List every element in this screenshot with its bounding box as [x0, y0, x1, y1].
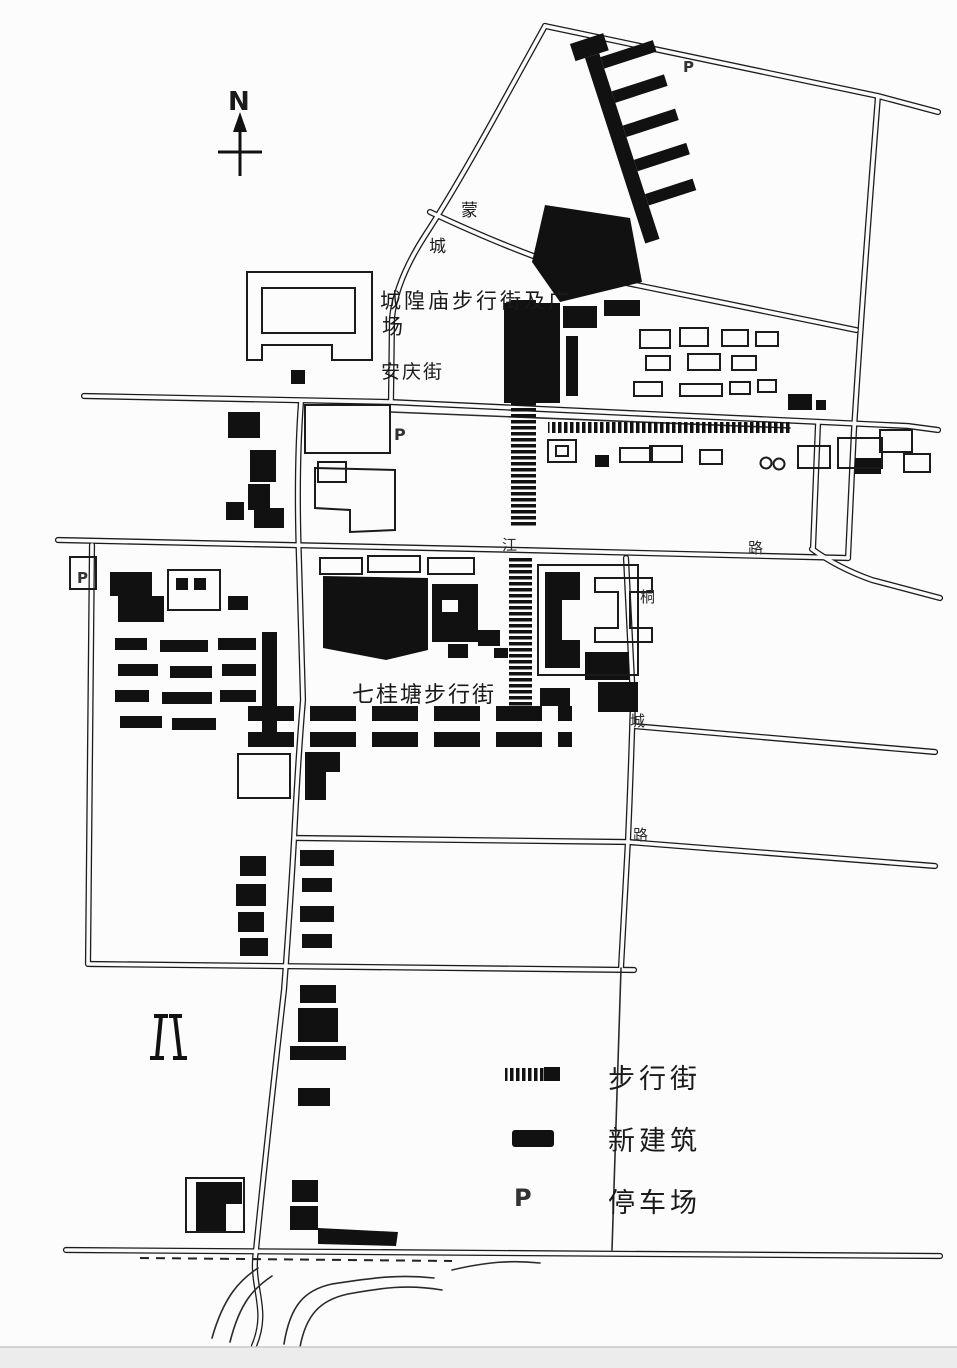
parking-marker-top: P: [683, 58, 694, 76]
north-letter: N: [228, 87, 250, 117]
anqing-street-label: 安庆街: [381, 361, 444, 383]
legend-item-new-building: 新建筑: [512, 1126, 701, 1157]
tongcheng-road-char-1: 桐: [640, 588, 655, 606]
map-canvas: N 城隍庙步行街及广 场 安庆街 蒙 城 七桂塘步行街 江 路 桐 城 路 P …: [0, 0, 957, 1368]
parking-marker-center: P: [394, 425, 406, 444]
new-buildings-layer: [110, 19, 881, 1246]
legend-label-pedestrian-street: 步行街: [608, 1064, 701, 1095]
legend-p-symbol: P: [514, 1184, 532, 1212]
parking-marker-left: P: [77, 569, 88, 587]
legend-item-pedestrian-street: 步行街: [505, 1064, 701, 1095]
north-arrow: N: [218, 87, 262, 176]
tongcheng-road-char-3: 路: [633, 826, 648, 844]
chenghuangmiao-label-line1: 城隍庙步行街及广: [380, 289, 572, 313]
legend-label-parking: 停车场: [608, 1188, 701, 1219]
legend-label-new-building: 新建筑: [608, 1126, 701, 1157]
legend-hatched-bar-end: [544, 1067, 560, 1081]
chenghuangmiao-label-line2: 场: [382, 315, 403, 339]
road-centers: [58, 26, 940, 1346]
changjiang-road-char: 江: [502, 536, 517, 554]
mengcheng-road-char-2: 城: [429, 237, 446, 257]
road-network: [58, 26, 940, 1346]
legend-item-parking: P 停车场: [514, 1184, 701, 1219]
changjiang-road-lu-char: 路: [748, 539, 763, 557]
scan-page-edge: [0, 1347, 957, 1368]
legend-black-block-symbol: [512, 1130, 554, 1147]
building-courtyard: [442, 600, 458, 612]
scanned-map-page: N 城隍庙步行街及广 场 安庆街 蒙 城 七桂塘步行街 江 路 桐 城 路 P …: [0, 0, 957, 1368]
bridge-symbol: [150, 1016, 187, 1058]
qiguitang-street-label: 七桂塘步行街: [352, 683, 496, 708]
mengcheng-road-char-1: 蒙: [461, 201, 478, 221]
legend: 步行街 新建筑 P 停车场: [505, 1064, 701, 1219]
tongcheng-road-char-2: 城: [630, 712, 645, 730]
